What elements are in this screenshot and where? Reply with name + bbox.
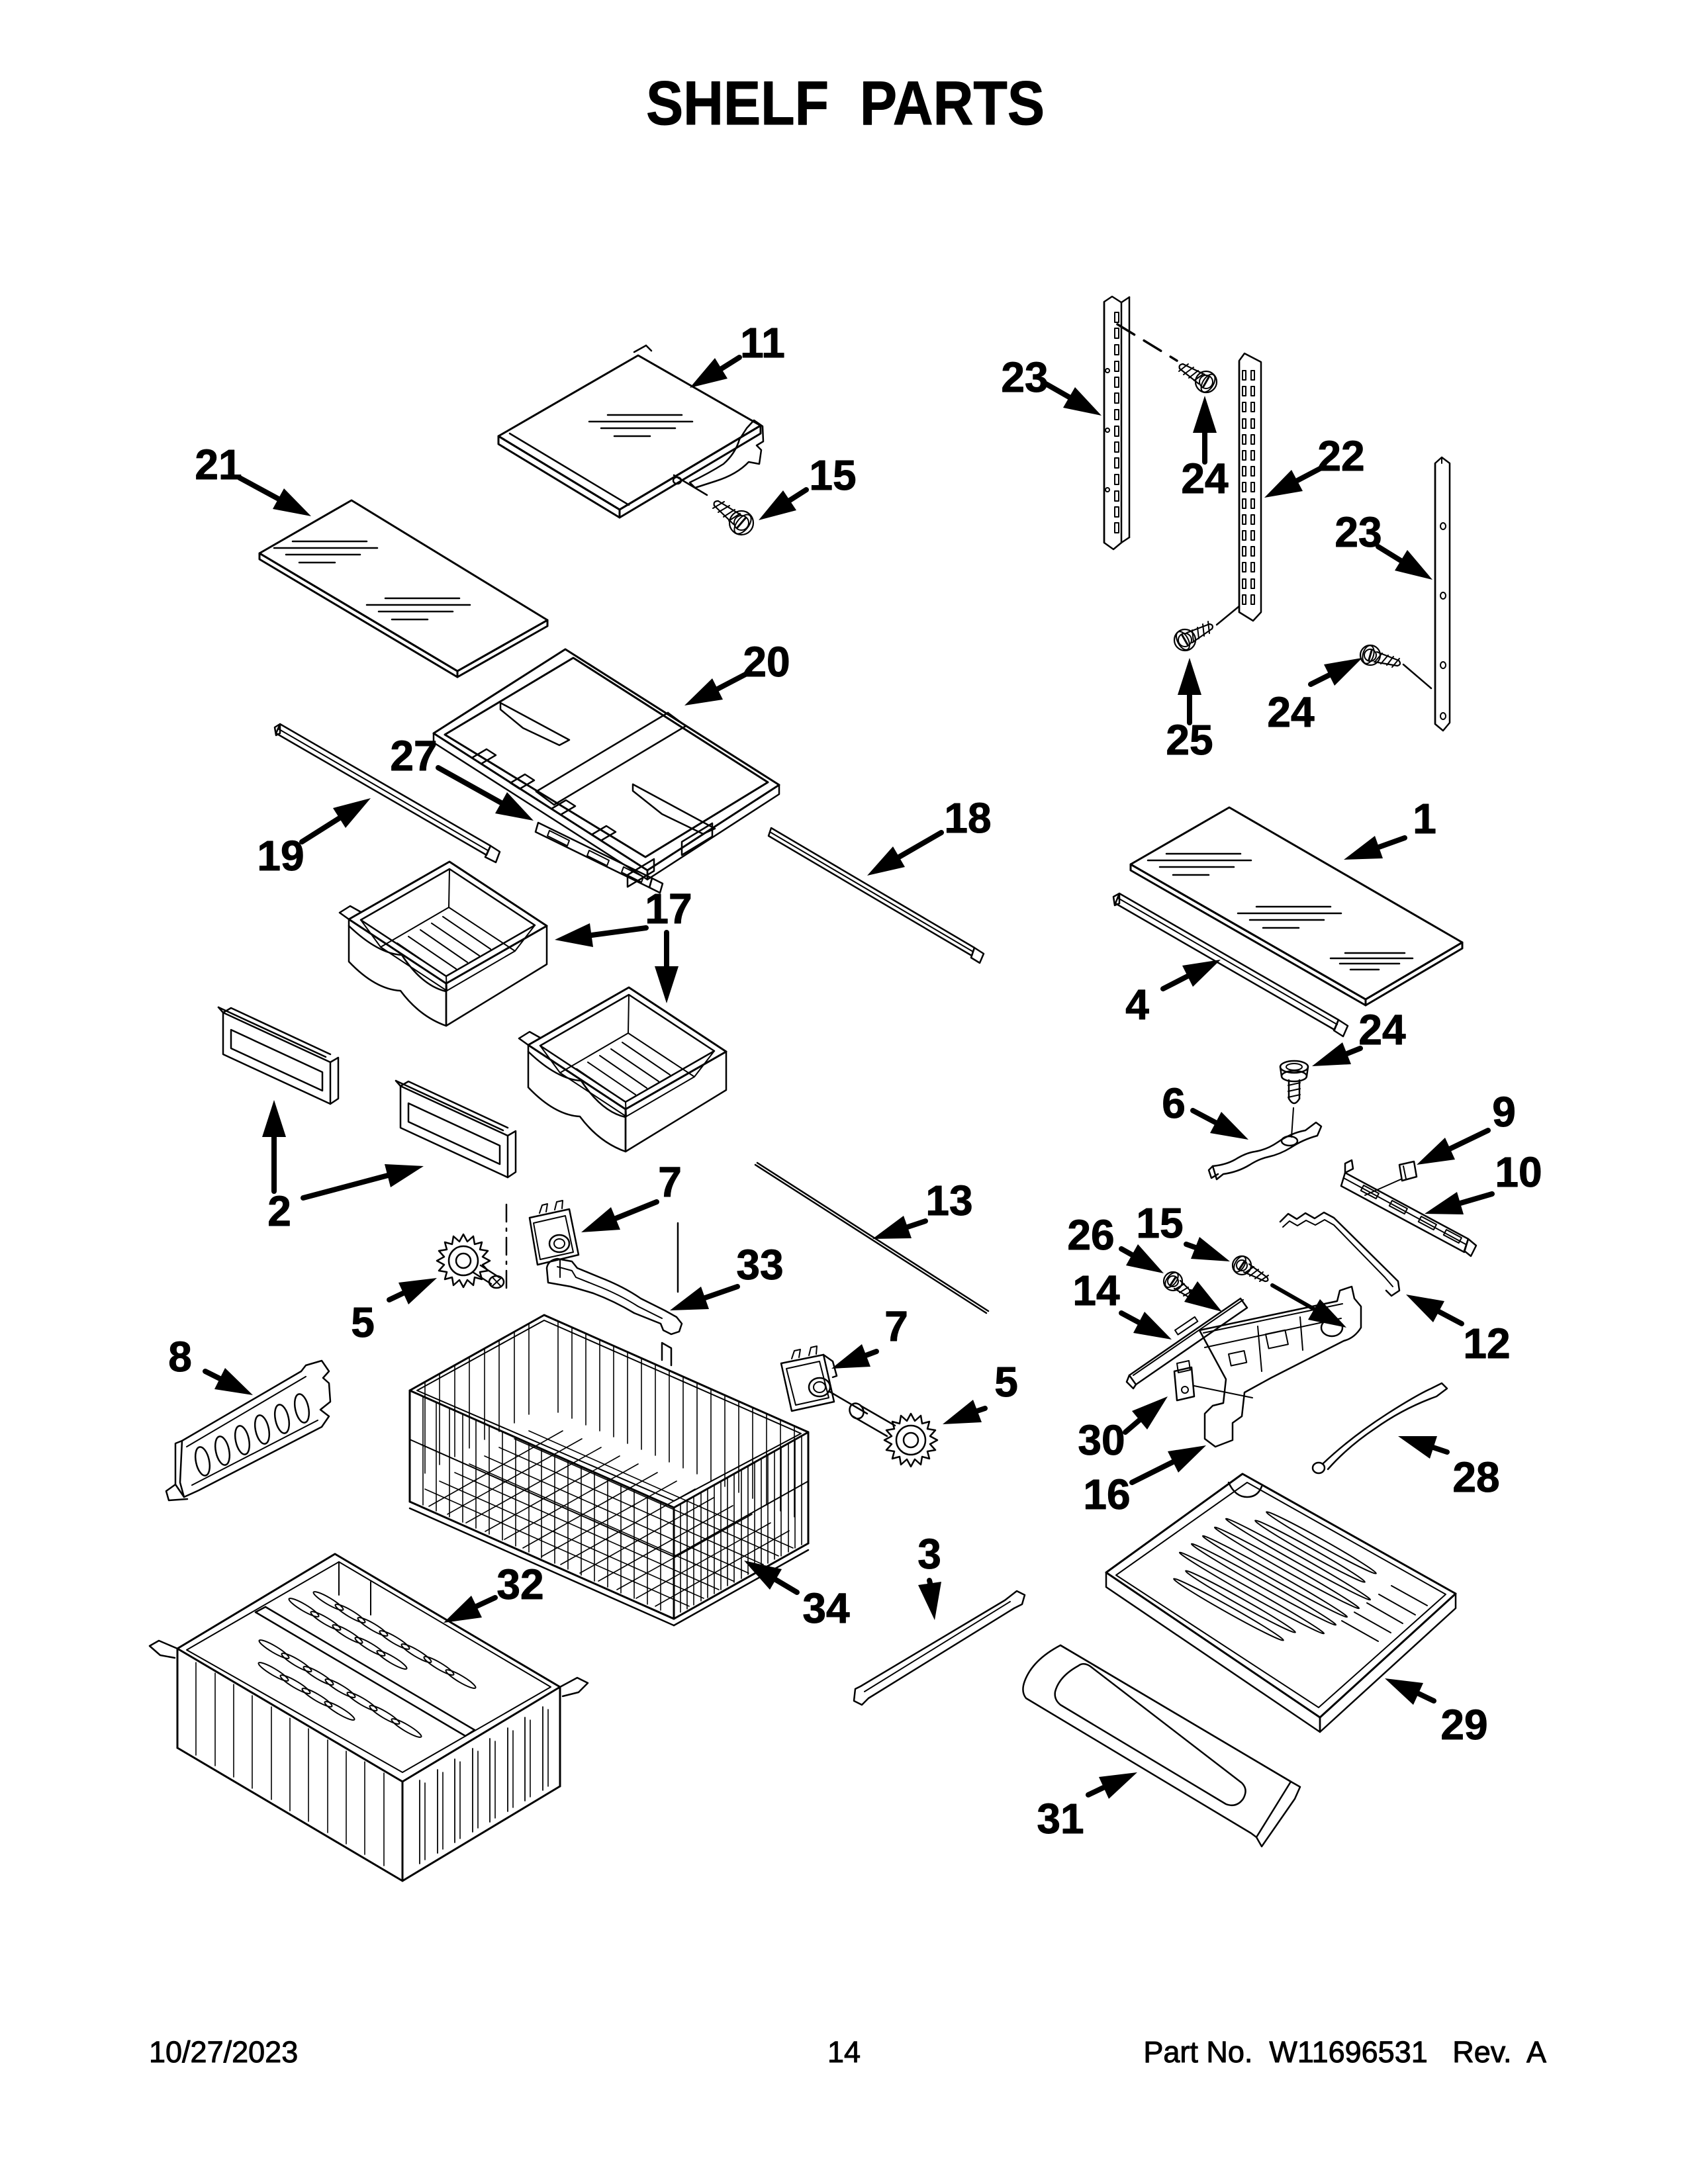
svg-text:5: 5 xyxy=(994,1358,1018,1406)
svg-text:10/27/2023: 10/27/2023 xyxy=(149,2035,298,2069)
svg-text:4: 4 xyxy=(1125,981,1149,1028)
svg-text:28: 28 xyxy=(1452,1453,1499,1501)
svg-text:16: 16 xyxy=(1083,1471,1130,1518)
svg-text:11: 11 xyxy=(740,319,785,367)
svg-text:32: 32 xyxy=(496,1561,543,1608)
svg-text:29: 29 xyxy=(1440,1701,1487,1749)
svg-text:34: 34 xyxy=(802,1584,850,1632)
svg-text:25: 25 xyxy=(1166,716,1213,764)
svg-text:2: 2 xyxy=(267,1187,291,1235)
svg-text:7: 7 xyxy=(658,1158,682,1206)
svg-text:10: 10 xyxy=(1495,1148,1542,1196)
svg-text:15: 15 xyxy=(1136,1199,1183,1247)
svg-text:33: 33 xyxy=(736,1241,783,1289)
svg-text:19: 19 xyxy=(257,832,304,880)
svg-text:3: 3 xyxy=(917,1530,941,1578)
svg-text:24: 24 xyxy=(1267,688,1315,736)
svg-text:Part No. W11696531 Rev. A: Part No. W11696531 Rev. A xyxy=(1143,2035,1546,2069)
svg-text:12: 12 xyxy=(1463,1320,1510,1367)
svg-text:5: 5 xyxy=(351,1298,375,1346)
svg-text:23: 23 xyxy=(1335,508,1382,556)
svg-text:23: 23 xyxy=(1001,353,1048,401)
svg-text:SHELF PARTS: SHELF PARTS xyxy=(646,68,1045,138)
svg-text:9: 9 xyxy=(1492,1088,1516,1136)
svg-text:7: 7 xyxy=(884,1302,908,1350)
svg-text:13: 13 xyxy=(925,1177,972,1224)
svg-text:17: 17 xyxy=(645,885,692,933)
svg-text:1: 1 xyxy=(1413,795,1436,842)
svg-text:24: 24 xyxy=(1181,455,1229,502)
svg-text:21: 21 xyxy=(195,441,242,488)
svg-text:8: 8 xyxy=(168,1333,192,1381)
svg-text:30: 30 xyxy=(1078,1416,1125,1464)
svg-text:26: 26 xyxy=(1067,1211,1114,1259)
svg-text:14: 14 xyxy=(1072,1267,1120,1314)
svg-text:27: 27 xyxy=(390,732,437,780)
svg-text:20: 20 xyxy=(743,638,790,686)
svg-text:18: 18 xyxy=(944,794,991,842)
svg-text:6: 6 xyxy=(1162,1079,1186,1127)
svg-text:31: 31 xyxy=(1037,1795,1084,1843)
svg-text:22: 22 xyxy=(1317,432,1364,480)
svg-text:14: 14 xyxy=(827,2035,861,2069)
svg-text:15: 15 xyxy=(809,451,856,499)
svg-text:24: 24 xyxy=(1358,1006,1406,1054)
